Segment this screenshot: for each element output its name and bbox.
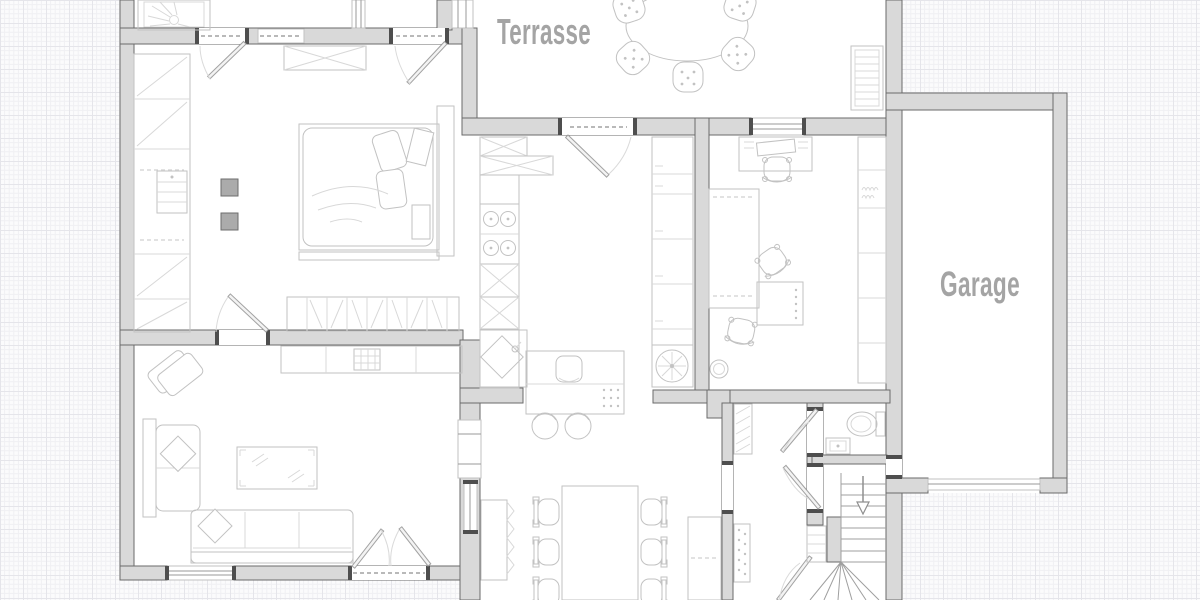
wall-garage-bottom-left <box>886 478 928 493</box>
floorplan-canvas: Terrasse Garage <box>0 0 1200 600</box>
pillar-square <box>221 179 238 196</box>
chair <box>641 537 667 567</box>
wall-kitchen-office <box>695 118 709 403</box>
chair <box>533 537 559 567</box>
window-terrace-top-left <box>452 0 473 28</box>
wall-office-bottom <box>653 390 890 403</box>
wall-niche-cabinet <box>458 420 481 478</box>
wall-garage-right <box>1053 93 1067 493</box>
bedside-item <box>412 205 430 239</box>
pillow <box>375 168 407 209</box>
terrace-label: Terrasse <box>497 11 591 52</box>
wall-right-shared <box>886 0 902 600</box>
wall-terrace-bottom <box>462 118 902 135</box>
wall-garage-top <box>886 93 1067 110</box>
bar-stool <box>532 413 558 439</box>
opening-dining-hall <box>722 461 733 514</box>
window-bedroom-top <box>258 29 304 43</box>
dresser <box>157 171 187 213</box>
opening-right-wall <box>886 455 902 479</box>
pillar-square <box>221 213 238 230</box>
bar-stool <box>565 413 591 439</box>
wall-left-exterior <box>120 0 134 580</box>
chair <box>533 497 559 527</box>
window-living-bottom <box>165 566 236 580</box>
chair <box>533 577 559 600</box>
wall-kitchen-stub <box>460 388 523 403</box>
chair <box>641 577 667 600</box>
wall-stair-left <box>827 517 841 562</box>
terrace-chair <box>673 62 703 92</box>
wall-garage-bottom-right <box>1040 478 1067 493</box>
wall-bath-terrace-stub <box>437 0 452 30</box>
pocket-window-dining <box>463 480 478 534</box>
chair <box>641 497 667 527</box>
garage-label: Garage <box>940 265 1020 304</box>
window-office-terrace <box>749 118 806 135</box>
wall-wc-bottom <box>812 455 887 464</box>
floorplan-screenshot: Terrasse Garage <box>0 0 1200 600</box>
garage-door <box>928 479 1040 490</box>
window-bath-top <box>352 0 365 28</box>
